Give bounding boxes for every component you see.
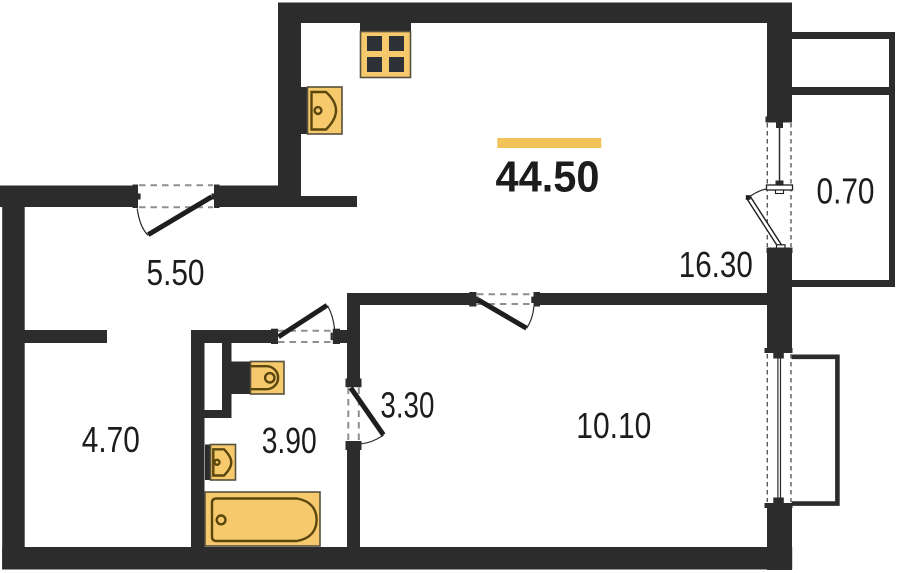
svg-text:44.50: 44.50 (496, 153, 600, 202)
svg-text:0.70: 0.70 (817, 171, 875, 212)
svg-text:5.50: 5.50 (147, 252, 205, 293)
svg-text:16.30: 16.30 (679, 244, 753, 285)
svg-text:3.30: 3.30 (380, 385, 434, 426)
svg-text:3.90: 3.90 (262, 420, 317, 461)
svg-text:10.10: 10.10 (576, 405, 651, 446)
svg-text:4.70: 4.70 (82, 419, 140, 460)
